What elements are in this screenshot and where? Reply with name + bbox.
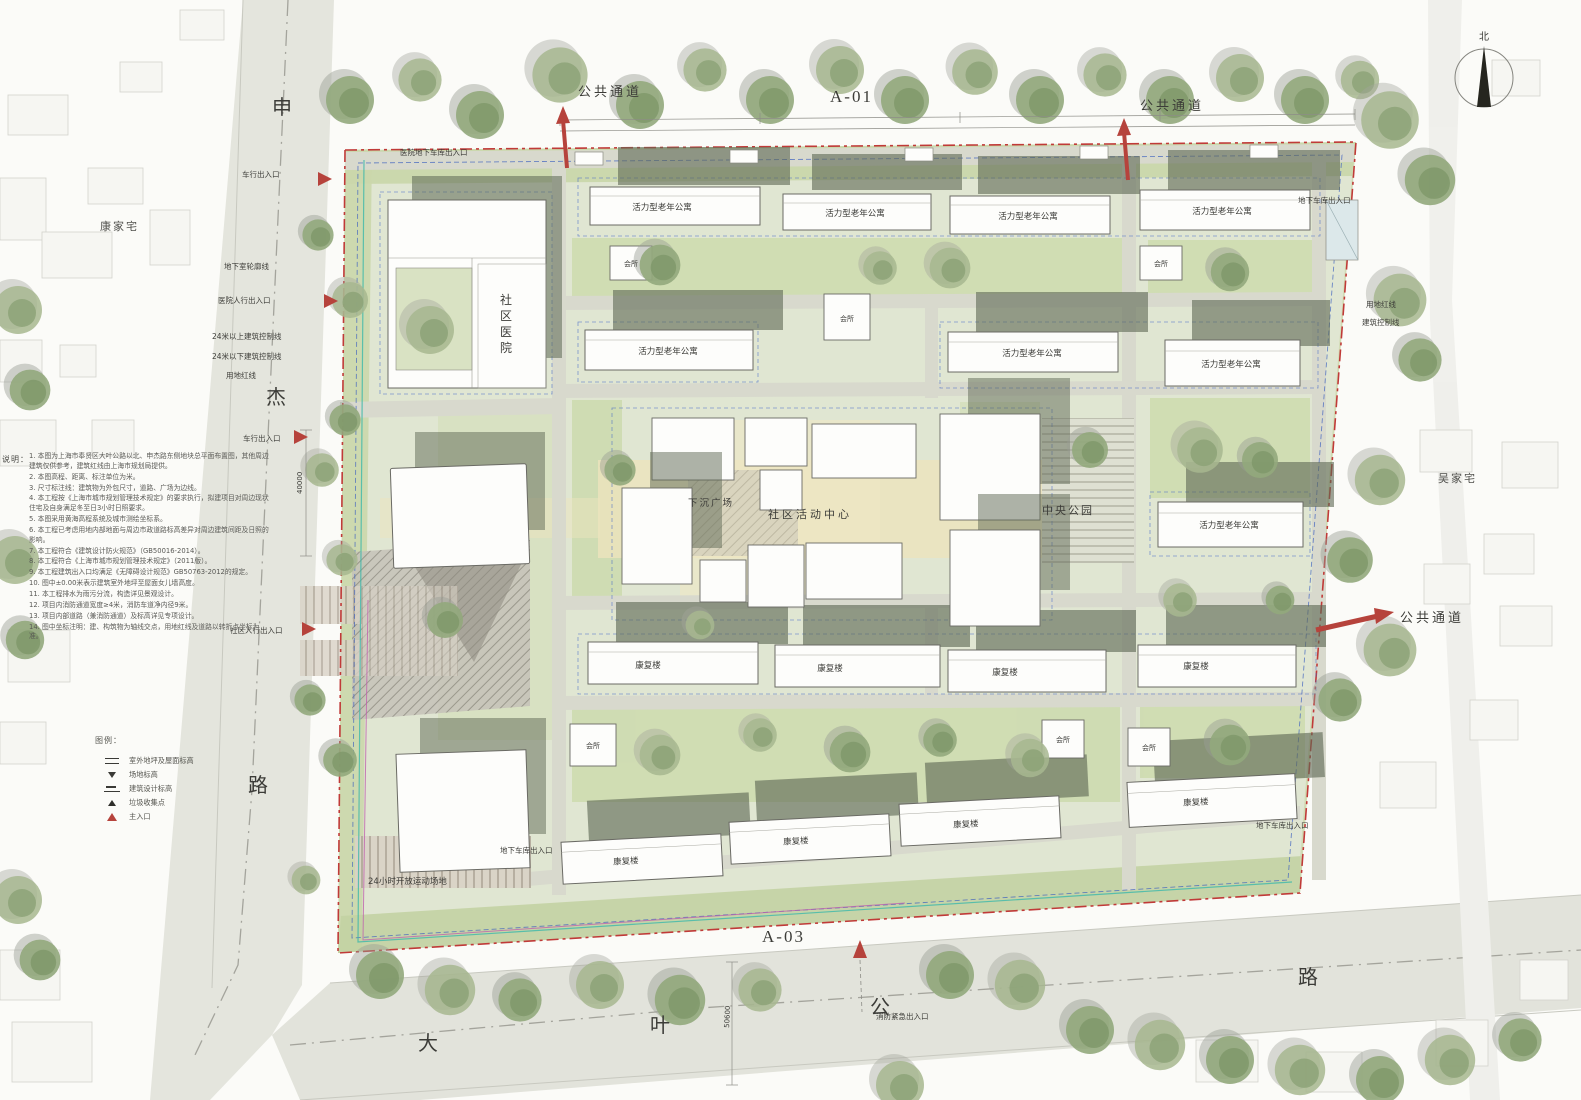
context-village-west: 康家宅 xyxy=(100,219,139,233)
context-village-east: 吴家宅 xyxy=(1438,471,1477,485)
note-item: 14. 图中坐标注明：建、构筑物为轴线交点，用地红线及道路以转折点坐标为准。 xyxy=(29,623,270,643)
senior-apartment-label-6: 活力型老年公寓 xyxy=(1002,348,1062,359)
hospital-char-4: 院 xyxy=(500,341,512,355)
legend-label: 建筑设计标高 xyxy=(129,784,285,794)
rehab-label-4: 康复楼 xyxy=(1183,661,1209,672)
rehab-label-2: 康复楼 xyxy=(817,663,843,674)
red-line-label-east: 用地红线 xyxy=(1366,299,1396,309)
vehicle-entrance-label-1: 车行出入口 xyxy=(242,169,280,179)
clubhouse-label-4: 会所 xyxy=(586,741,600,750)
south-road-char-1: 大 xyxy=(418,1032,438,1055)
legend-label: 场地标高 xyxy=(129,770,285,780)
note-item: 5. 本图采用黄海高程系统及城市测绘坐标系。 xyxy=(29,515,270,525)
clubhouse-label-1: 会所 xyxy=(624,259,638,268)
legend-label: 垃圾收集点 xyxy=(129,798,285,808)
senior-apartment-label-3: 活力型老年公寓 xyxy=(998,211,1058,222)
note-item: 12. 项目内消防通道宽度≥4米，消防车道净内径9米。 xyxy=(29,601,270,611)
senior-apartment-label-5: 活力型老年公寓 xyxy=(638,346,698,357)
rehab-label-3: 康复楼 xyxy=(992,667,1018,678)
note-item: 10. 图中±0.00米表示建筑室外地坪至屋面女儿墙高度。 xyxy=(29,579,270,589)
above-24m-label: 24米以上建筑控制线 xyxy=(212,331,282,341)
note-item: 7. 本工程符合《建筑设计防火规范》（GB50016-2014）。 xyxy=(29,547,270,557)
south-road-char-2: 叶 xyxy=(650,1014,670,1037)
note-item: 13. 项目内部道路（兼消防通道）及标高详见专项设计。 xyxy=(29,612,270,622)
legend-header: 图例： xyxy=(95,735,285,746)
note-item: 3. 尺寸标注线：建筑物为外包尺寸，道路、广场为边线。 xyxy=(29,484,270,494)
senior-apartment-label-1: 活力型老年公寓 xyxy=(632,202,692,213)
note-item: 1. 本图为上海市奉贤区大叶公路以北、申杰路东侧地块总平面布置图，其他周边建筑仅… xyxy=(29,452,270,472)
hospital-garage-label: 医院地下车库出入口 xyxy=(400,147,468,157)
public-passage-label-3: 公共通道 xyxy=(1400,611,1464,626)
sunken-plaza-label: 下沉广场 xyxy=(688,497,734,509)
site-elevation-mark-icon xyxy=(95,772,129,778)
hospital-char-1: 社 xyxy=(500,292,512,307)
clubhouse-label-3: 会所 xyxy=(840,314,854,323)
rehab-label-5: 康复楼 xyxy=(613,855,640,867)
legend-row: 建筑设计标高 xyxy=(95,782,285,796)
west-road-char-2: 杰 xyxy=(266,386,286,409)
clubhouse-label-6: 会所 xyxy=(1142,743,1156,752)
legend-row: 场地标高 xyxy=(95,768,285,782)
sector-a03: A-03 xyxy=(762,927,805,946)
public-passage-label-2: 公共通道 xyxy=(1140,99,1204,114)
senior-apartment-label-7: 活力型老年公寓 xyxy=(1201,359,1261,370)
fire-emergency-label: 消防紧急出入口 xyxy=(876,1011,929,1021)
public-passage-label-1: 公共通道 xyxy=(578,85,642,100)
legend-row: 室外地坪及屋面标高 xyxy=(95,754,285,768)
central-park-label: 中央公园 xyxy=(1042,504,1094,517)
activity-center-label: 社区活动中心 xyxy=(768,507,852,521)
note-item: 9. 本工程建筑出入口均满足《无障碍设计规范》GB50763-2012的规定。 xyxy=(29,568,270,578)
dimension-south: 50600 xyxy=(723,1005,732,1028)
dimension-west: 40000 xyxy=(296,472,304,494)
basement-outline-label: 地下室轮廓线 xyxy=(224,261,269,271)
legend-row: 垃圾收集点 xyxy=(95,796,285,810)
legend: 图例： 室外地坪及屋面标高 场地标高 建筑设计标高 垃圾收集点 主入口 xyxy=(95,735,285,824)
senior-apartment-label-8: 活力型老年公寓 xyxy=(1199,520,1259,531)
legend-label: 主入口 xyxy=(129,812,285,822)
hospital-pedestrian-label: 医院人行出入口 xyxy=(218,295,271,305)
south-road-char-4: 路 xyxy=(1298,966,1318,989)
hospital-char-3: 医 xyxy=(500,325,512,339)
note-item: 11. 本工程排水为雨污分流，构造详见景观设计。 xyxy=(29,590,270,600)
note-item: 2. 本图高程、距离、标注单位为米。 xyxy=(29,473,270,483)
garage-label-bottomleft: 地下车库出入口 xyxy=(500,845,553,855)
rehab-label-6: 康复楼 xyxy=(783,835,810,847)
general-notes: 说明： 1. 本图为上海市奉贤区大叶公路以北、申杰路东侧地块总平面布置图，其他周… xyxy=(2,452,270,643)
below-24m-label: 24米以下建筑控制线 xyxy=(212,351,282,361)
legend-row: 主入口 xyxy=(95,810,285,824)
clubhouse-label-5: 会所 xyxy=(1056,735,1070,744)
legend-label: 室外地坪及屋面标高 xyxy=(129,756,285,766)
notes-header: 说明： xyxy=(2,454,29,466)
garage-label-topright: 地下车库出入口 xyxy=(1298,195,1351,205)
rehab-label-8: 康复楼 xyxy=(1183,796,1210,808)
sports-field-label: 24小时开放运动场地 xyxy=(368,876,447,887)
hospital-building xyxy=(388,176,562,388)
rehab-label-7: 康复楼 xyxy=(953,818,980,830)
sector-a01: A-01 xyxy=(830,87,873,106)
control-line-label-east: 建筑控制线 xyxy=(1362,317,1400,327)
garage-label-bottomright: 地下车库出入口 xyxy=(1256,820,1309,830)
roof-elevation-mark-icon xyxy=(95,758,129,764)
vehicle-entrance-label-2: 车行出入口 xyxy=(243,433,281,443)
site-plan-page: 康家宅 吴家宅 xyxy=(0,0,1581,1100)
senior-apartment-label-4: 活力型老年公寓 xyxy=(1192,206,1252,217)
north-label: 北 xyxy=(1479,31,1489,43)
hospital-char-2: 区 xyxy=(500,309,512,323)
rehab-label-1: 康复楼 xyxy=(635,660,661,671)
clubhouse-label-2: 会所 xyxy=(1154,259,1168,268)
note-item: 6. 本工程已考虑用地内部地面与周边市政道路标高差异对周边建筑间距及日照的影响。 xyxy=(29,526,270,546)
trash-collection-point-icon xyxy=(95,800,129,806)
main-entrance-arrow-icon xyxy=(95,813,129,821)
senior-apartment-label-2: 活力型老年公寓 xyxy=(825,208,885,219)
design-elevation-mark-icon xyxy=(95,786,129,792)
note-item: 4. 本工程按《上海市城市规划管理技术规定》的要求执行，拟建项目对周边现状住宅及… xyxy=(29,494,270,514)
red-line-label-west: 用地红线 xyxy=(226,370,256,380)
west-road-char-1: 申 xyxy=(272,96,292,119)
note-item: 8. 本工程符合《上海市城市规划管理技术规定》（2011版）。 xyxy=(29,557,270,567)
